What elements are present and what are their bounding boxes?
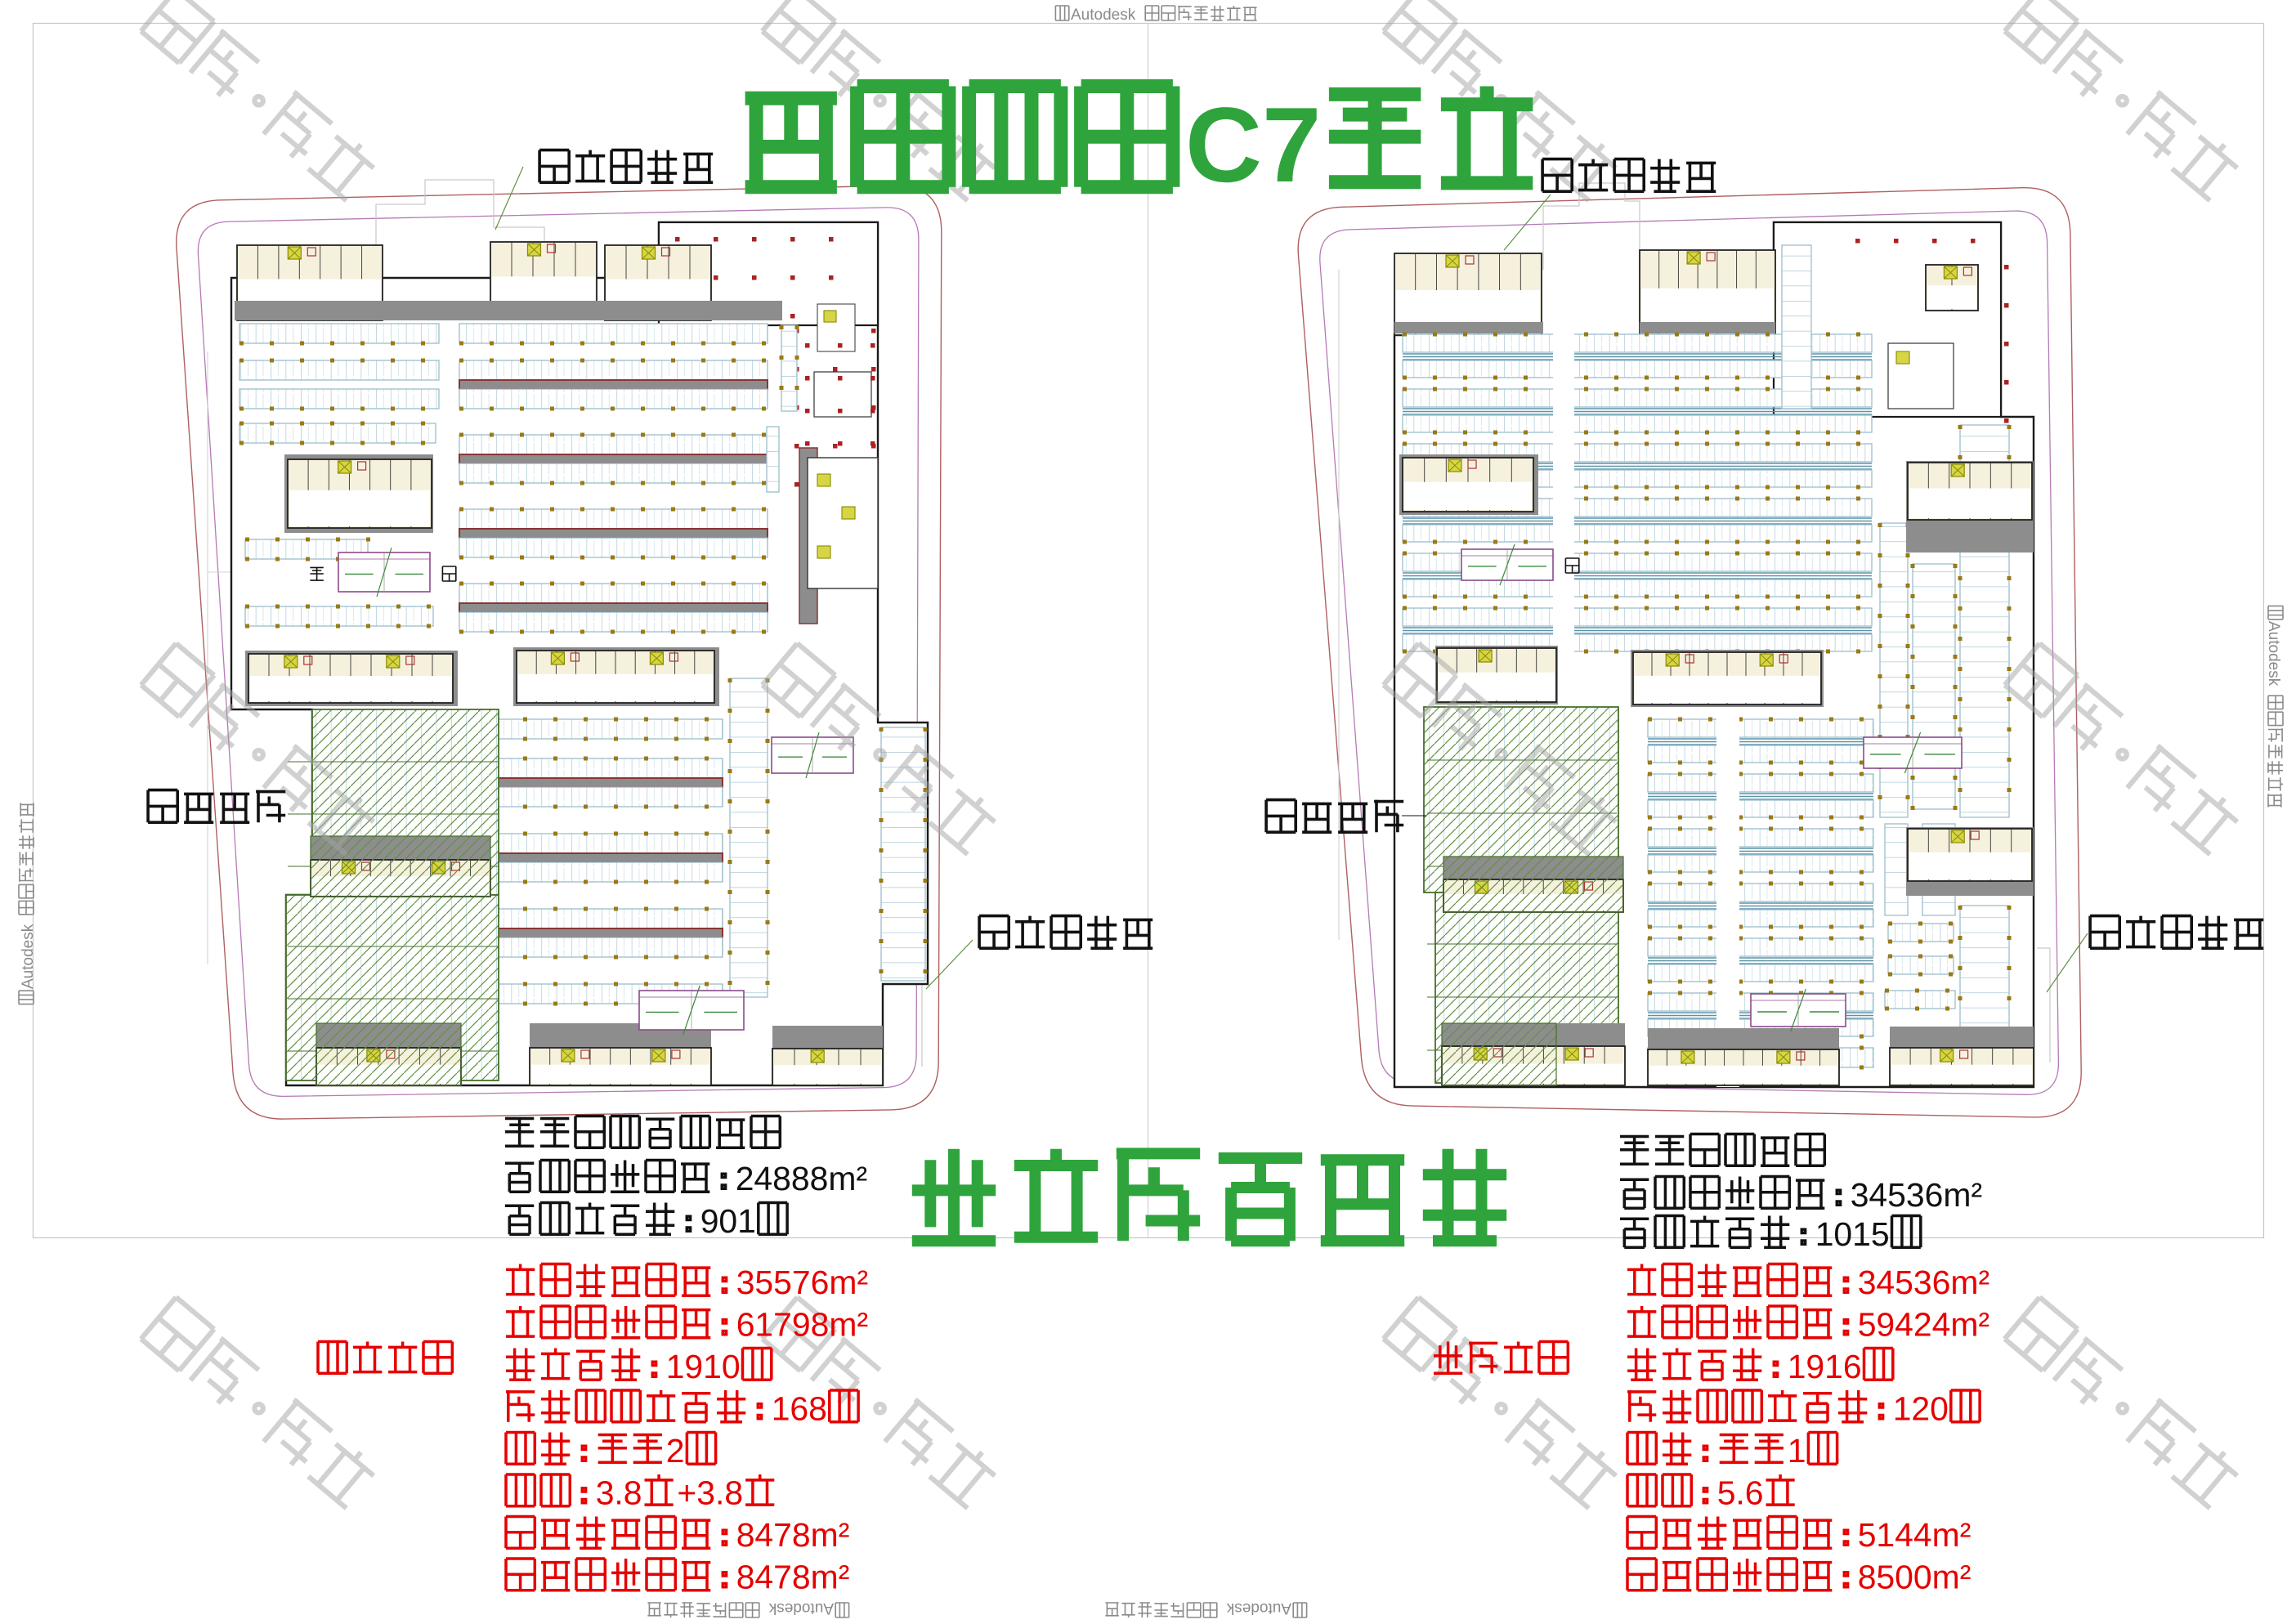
svg-text:Autodesk: Autodesk — [20, 924, 37, 989]
svg-text:59424m²: 59424m² — [1858, 1306, 1989, 1344]
svg-text:Autodesk: Autodesk — [768, 1599, 834, 1617]
svg-text:1: 1 — [1788, 1432, 1806, 1470]
svg-text:8478m²: 8478m² — [736, 1516, 850, 1554]
svg-text:5144m²: 5144m² — [1858, 1516, 1972, 1554]
svg-text:35576m²: 35576m² — [736, 1264, 868, 1301]
svg-text:1015: 1015 — [1815, 1215, 1890, 1253]
svg-text:8500m²: 8500m² — [1858, 1559, 1972, 1596]
svg-text:3.8: 3.8 — [596, 1474, 642, 1512]
svg-text:5.6: 5.6 — [1717, 1474, 1764, 1512]
svg-text:34536m²: 34536m² — [1858, 1264, 1989, 1301]
svg-text:C7: C7 — [1185, 85, 1321, 204]
svg-text:168: 168 — [772, 1390, 827, 1428]
svg-text:Autodesk: Autodesk — [1226, 1599, 1291, 1617]
svg-text:24888m²: 24888m² — [736, 1160, 867, 1197]
svg-text:61798m²: 61798m² — [736, 1306, 868, 1344]
svg-text:901: 901 — [700, 1202, 756, 1240]
svg-text:Autodesk: Autodesk — [2265, 621, 2282, 687]
svg-text:1910: 1910 — [666, 1348, 741, 1385]
svg-text:8478m²: 8478m² — [736, 1559, 850, 1596]
svg-text:34536m²: 34536m² — [1851, 1176, 1982, 1214]
svg-text:Autodesk: Autodesk — [1071, 7, 1136, 24]
svg-text:2: 2 — [666, 1432, 685, 1470]
svg-text:120: 120 — [1893, 1390, 1949, 1428]
svg-text:1916: 1916 — [1788, 1348, 1862, 1385]
svg-text:+3.8: +3.8 — [677, 1474, 743, 1512]
